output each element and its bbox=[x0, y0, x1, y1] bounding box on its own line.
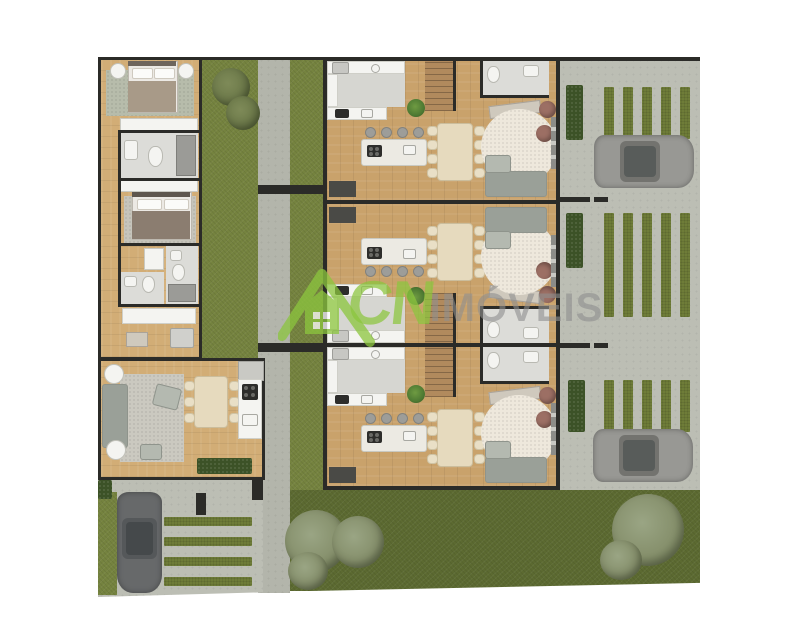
paver-grass-strip bbox=[604, 213, 614, 317]
car bbox=[594, 135, 694, 188]
middle-unit-1 bbox=[327, 61, 556, 200]
shower bbox=[176, 135, 196, 176]
bar-stool bbox=[365, 413, 376, 424]
bar-stool bbox=[397, 413, 408, 424]
sofa bbox=[485, 457, 547, 483]
interior-wall bbox=[118, 304, 200, 307]
car bbox=[593, 429, 693, 482]
middle-unit-3 bbox=[327, 347, 556, 486]
plant-icon bbox=[407, 385, 425, 403]
side-garden-grass-lower bbox=[290, 360, 323, 490]
paver-grass-strip bbox=[680, 213, 690, 317]
dining-table bbox=[437, 123, 473, 181]
bar-stool bbox=[381, 127, 392, 138]
laundry-cabinet bbox=[327, 74, 338, 107]
kitchen-sink-icon bbox=[361, 286, 373, 295]
driveway-divider-wall bbox=[560, 343, 590, 348]
bed-pillow bbox=[154, 68, 175, 79]
driveway-grass-edge bbox=[98, 492, 117, 595]
driveway-divider-post bbox=[594, 343, 608, 348]
side-table bbox=[104, 364, 124, 384]
bar-stool bbox=[397, 266, 408, 277]
laundry-cabinet bbox=[327, 297, 338, 330]
gate-post bbox=[252, 480, 263, 500]
paver-grass-strip bbox=[642, 380, 652, 432]
dining-chair bbox=[427, 140, 438, 150]
plant-icon bbox=[407, 99, 425, 117]
laundry-counter bbox=[122, 308, 196, 324]
island-sink-icon bbox=[403, 145, 416, 155]
toilet-icon bbox=[172, 264, 185, 281]
bar-stool bbox=[381, 413, 392, 424]
bed-blanket bbox=[132, 211, 190, 239]
tree bbox=[600, 540, 642, 580]
laundry-cabinet bbox=[327, 360, 338, 393]
bar-stool bbox=[365, 127, 376, 138]
staircase bbox=[425, 347, 453, 397]
island-cooktop-icon bbox=[367, 145, 382, 157]
bathroom-sink-icon bbox=[523, 351, 539, 363]
sofa bbox=[485, 171, 547, 197]
paver-grass-strip bbox=[623, 213, 633, 317]
shower bbox=[168, 284, 196, 302]
washer-icon bbox=[332, 330, 349, 342]
kitchen-sink-icon bbox=[361, 109, 373, 118]
bed-double-2 bbox=[132, 192, 192, 240]
bed-headboard bbox=[132, 192, 190, 197]
sofa bbox=[485, 207, 547, 233]
unit-floor bbox=[327, 204, 556, 343]
island-cooktop-icon bbox=[367, 431, 382, 443]
dining-chair bbox=[427, 240, 438, 250]
paver-grass-strip bbox=[604, 380, 614, 432]
laundry-table bbox=[126, 332, 148, 347]
sofa-chaise bbox=[485, 155, 511, 173]
washer-dryer-niche bbox=[329, 207, 356, 223]
wall-cooktop-icon bbox=[335, 286, 349, 295]
washer-icon bbox=[170, 328, 194, 348]
pouf bbox=[539, 101, 556, 118]
wall-cooktop-icon bbox=[335, 109, 349, 118]
dining-chair bbox=[427, 254, 438, 264]
bed-double bbox=[128, 61, 178, 113]
paver-grass-strip bbox=[661, 213, 671, 317]
stair-rail bbox=[453, 61, 456, 111]
interior-wall bbox=[118, 178, 200, 181]
dining-chair bbox=[427, 126, 438, 136]
toilet-icon bbox=[148, 146, 163, 167]
pouf bbox=[539, 387, 556, 404]
bar-stool bbox=[397, 127, 408, 138]
unit-floor bbox=[327, 61, 556, 200]
toilet-icon bbox=[142, 276, 155, 293]
paver-grass-strip bbox=[661, 380, 671, 432]
laundry-sink-icon bbox=[371, 331, 380, 340]
stove-icon bbox=[242, 384, 258, 400]
garden-fence-top bbox=[202, 57, 323, 60]
bathroom-sink-icon bbox=[523, 65, 539, 77]
bar-stool bbox=[381, 266, 392, 277]
bar-stool bbox=[413, 127, 424, 138]
garden-wall bbox=[258, 185, 323, 194]
kitchen-sink-icon bbox=[361, 395, 373, 404]
paver-grass-strip bbox=[604, 87, 614, 139]
hedge bbox=[98, 480, 112, 499]
toilet-icon bbox=[487, 321, 500, 338]
stair-rail bbox=[453, 347, 456, 397]
ottoman bbox=[140, 444, 162, 460]
washer-icon bbox=[332, 62, 349, 74]
tree bbox=[288, 552, 328, 590]
paver-grass-strip bbox=[623, 87, 633, 139]
paver-grass-strip bbox=[642, 87, 652, 139]
toilet-icon bbox=[487, 66, 500, 83]
dining-table bbox=[437, 409, 473, 467]
dining-table bbox=[437, 223, 473, 281]
paver-grass-strip bbox=[164, 517, 252, 526]
toilet-icon bbox=[487, 352, 500, 369]
nightstand-lamp bbox=[178, 63, 194, 79]
hedge bbox=[566, 213, 583, 268]
kitchen-sink-icon bbox=[242, 414, 258, 426]
dining-chair bbox=[474, 168, 485, 178]
dining-chair bbox=[474, 454, 485, 464]
laundry-sink-icon bbox=[371, 350, 380, 359]
paver-grass-strip bbox=[642, 213, 652, 317]
unit-floor bbox=[327, 347, 556, 486]
staircase bbox=[425, 61, 453, 111]
driveway-divider-post bbox=[594, 197, 608, 202]
interior-wall bbox=[118, 243, 200, 246]
paver-grass-strip bbox=[680, 380, 690, 432]
dining-chair bbox=[427, 154, 438, 164]
paver-grass-strip bbox=[164, 577, 252, 586]
kitchen-upper-cabinet bbox=[238, 361, 264, 381]
bathroom-sink-icon bbox=[124, 140, 138, 160]
washer-icon bbox=[332, 348, 349, 360]
driveway-divider-wall bbox=[560, 197, 590, 202]
sofa-chaise bbox=[485, 441, 511, 459]
corridor-wall bbox=[118, 130, 121, 307]
bathroom-wall-side bbox=[480, 61, 483, 98]
bed-blanket bbox=[128, 81, 176, 112]
bathroom-wall-side bbox=[480, 347, 483, 384]
hedge bbox=[566, 85, 583, 140]
tree bbox=[226, 96, 260, 130]
paver-grass-strip bbox=[623, 380, 633, 432]
tree bbox=[332, 516, 384, 568]
dining-chair bbox=[184, 413, 195, 423]
wall-cooktop-icon bbox=[335, 395, 349, 404]
side-table bbox=[106, 440, 126, 460]
bathroom-wall bbox=[483, 381, 549, 384]
bar-stool bbox=[413, 266, 424, 277]
patio-hedge bbox=[197, 458, 252, 474]
closet bbox=[144, 248, 164, 270]
staircase bbox=[425, 293, 453, 343]
bed-pillow bbox=[137, 199, 162, 210]
garden-wall bbox=[258, 343, 323, 352]
glass-door bbox=[551, 235, 556, 287]
paver-grass-strip bbox=[164, 537, 252, 546]
island-sink-icon bbox=[403, 249, 416, 259]
island-cooktop-icon bbox=[367, 247, 382, 259]
dining-chair bbox=[427, 412, 438, 422]
dining-chair bbox=[474, 226, 485, 236]
hedge bbox=[568, 380, 585, 432]
bathroom-sink-icon bbox=[124, 276, 137, 287]
dining-chair bbox=[427, 454, 438, 464]
bathroom-sink-icon bbox=[523, 327, 539, 339]
dining-table bbox=[194, 376, 228, 428]
car-glass bbox=[624, 146, 656, 178]
car-glass bbox=[126, 522, 153, 554]
bed-headboard bbox=[128, 61, 176, 66]
dining-chair bbox=[427, 268, 438, 278]
bed-pillow bbox=[164, 199, 189, 210]
sofa bbox=[102, 384, 128, 448]
interior-wall bbox=[118, 130, 200, 133]
floorplan-render: CN IMÓVEIS bbox=[0, 0, 800, 640]
plant-icon bbox=[407, 287, 425, 305]
dining-chair bbox=[427, 168, 438, 178]
stair-rail bbox=[453, 293, 456, 343]
bed-pillow bbox=[132, 68, 153, 79]
bathroom-wall-side bbox=[480, 306, 483, 343]
car-glass bbox=[623, 440, 655, 472]
paver-grass-strip bbox=[164, 557, 252, 566]
dining-chair bbox=[427, 226, 438, 236]
middle-building bbox=[323, 57, 560, 490]
dining-chair bbox=[184, 381, 195, 391]
pouf bbox=[539, 286, 556, 303]
laundry-sink-icon bbox=[371, 64, 380, 73]
bathroom-wall bbox=[483, 95, 549, 98]
nightstand-lamp bbox=[110, 63, 126, 79]
paver-grass-strip bbox=[680, 87, 690, 139]
island-sink-icon bbox=[403, 431, 416, 441]
sofa-chaise bbox=[485, 231, 511, 249]
car bbox=[117, 492, 162, 593]
glass-door bbox=[551, 117, 556, 169]
dining-chair bbox=[184, 397, 195, 407]
middle-unit-2 bbox=[327, 204, 556, 343]
bar-stool bbox=[413, 413, 424, 424]
bathroom-sink-icon bbox=[170, 250, 182, 261]
washer-dryer-niche bbox=[329, 181, 356, 197]
dining-chair bbox=[427, 440, 438, 450]
washer-dryer-niche bbox=[329, 467, 356, 483]
wardrobe bbox=[120, 180, 198, 192]
bollard bbox=[196, 493, 206, 515]
bathroom-wall bbox=[483, 306, 549, 309]
glass-door bbox=[551, 403, 556, 455]
driveway-top-wall bbox=[560, 57, 700, 61]
paver-grass-strip bbox=[661, 87, 671, 139]
dining-chair bbox=[427, 426, 438, 436]
bar-stool bbox=[365, 266, 376, 277]
